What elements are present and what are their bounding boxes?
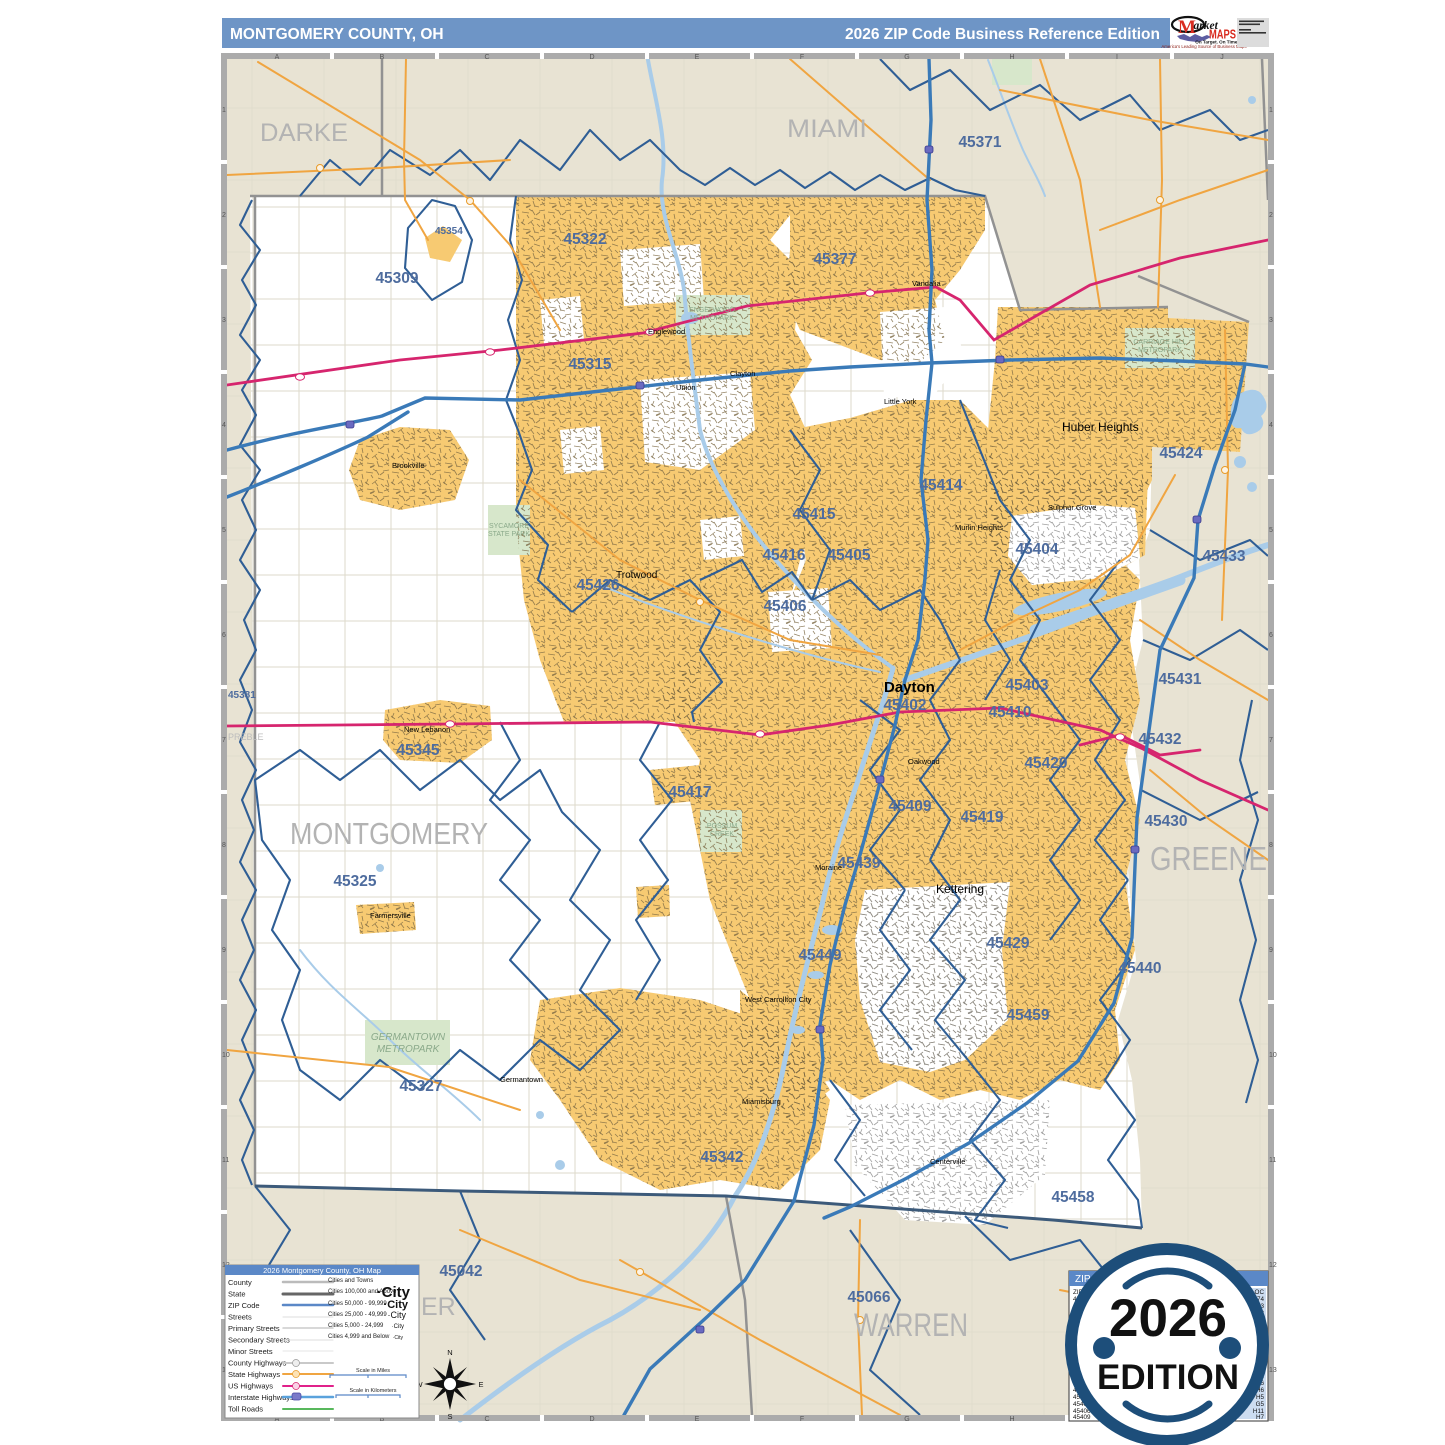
svg-text:State Highways: State Highways [228, 1370, 280, 1379]
svg-text:Minor Streets: Minor Streets [228, 1347, 273, 1356]
svg-text:GREENE: GREENE [1150, 840, 1267, 877]
svg-text:4: 4 [222, 422, 226, 429]
svg-text:I: I [1116, 54, 1118, 61]
svg-text:MIAMI: MIAMI [787, 115, 867, 143]
svg-text:45042: 45042 [439, 1263, 482, 1280]
svg-text:8: 8 [1269, 842, 1273, 849]
svg-text:West Carrollton City: West Carrollton City [745, 995, 812, 1004]
svg-text:45402: 45402 [883, 697, 926, 714]
svg-text:45406: 45406 [763, 598, 806, 615]
svg-text:45420: 45420 [1024, 755, 1067, 772]
svg-text:D: D [589, 54, 594, 61]
svg-text:County: County [228, 1278, 252, 1287]
svg-text:45410: 45410 [988, 704, 1031, 721]
svg-text:Cities 5,000 - 24,999: Cities 5,000 - 24,999 [328, 1323, 384, 1329]
svg-text:45440: 45440 [1118, 960, 1161, 977]
svg-text:7: 7 [1269, 737, 1273, 744]
svg-text:·City: ·City [393, 1335, 404, 1341]
svg-text:Huber Heights: Huber Heights [1062, 420, 1139, 434]
svg-text:45309: 45309 [375, 270, 418, 287]
svg-text:Englewood: Englewood [648, 327, 685, 336]
svg-text:S: S [447, 1412, 452, 1421]
svg-text:45431: 45431 [1158, 671, 1201, 688]
svg-text:County Highways: County Highways [228, 1359, 287, 1368]
svg-text:E: E [478, 1380, 483, 1389]
svg-text:A: A [275, 54, 280, 61]
svg-text:G: G [904, 54, 909, 61]
svg-text:45417: 45417 [668, 784, 711, 801]
svg-text:Cities 25,000 - 49,999: Cities 25,000 - 49,999 [328, 1312, 387, 1318]
svg-text:Cities 4,999 and Below: Cities 4,999 and Below [328, 1334, 390, 1340]
svg-text:45459: 45459 [1006, 1007, 1049, 1024]
svg-text:Dayton: Dayton [884, 679, 935, 696]
svg-text:MONTGOMERY COUNTY, OH: MONTGOMERY COUNTY, OH [230, 26, 444, 43]
svg-text:45424: 45424 [1159, 445, 1202, 462]
svg-text:10: 10 [222, 1052, 230, 1059]
svg-text:2026 ZIP Code Business Referen: 2026 ZIP Code Business Reference Edition [845, 26, 1160, 43]
svg-text:Vandalia: Vandalia [912, 279, 941, 288]
svg-text:F: F [800, 1416, 804, 1423]
svg-text:Cities and Towns: Cities and Towns [328, 1278, 373, 1284]
svg-text:45449: 45449 [798, 947, 841, 964]
svg-text:Kettering: Kettering [936, 882, 984, 896]
svg-text:45371: 45371 [958, 134, 1001, 151]
svg-text:WARREN: WARREN [854, 1307, 968, 1343]
svg-text:GERMANTOWN: GERMANTOWN [371, 1032, 446, 1043]
svg-text:Clayton: Clayton [730, 369, 755, 378]
svg-text:D: D [589, 1416, 594, 1423]
svg-text:45381: 45381 [228, 690, 256, 701]
svg-text:Little York: Little York [884, 397, 917, 406]
svg-text:11: 11 [1269, 1157, 1276, 1164]
svg-text:2: 2 [1269, 212, 1273, 219]
svg-text:45415: 45415 [792, 506, 835, 523]
svg-text:45377: 45377 [813, 251, 856, 268]
svg-text:H5: H5 [1256, 1394, 1265, 1401]
svg-text:N: N [447, 1348, 452, 1357]
svg-text:13: 13 [1269, 1367, 1277, 1374]
svg-text:Trotwood: Trotwood [616, 570, 657, 581]
svg-text:E: E [695, 54, 700, 61]
svg-text:F: F [800, 54, 804, 61]
svg-text:Centerville: Centerville [930, 1157, 965, 1166]
svg-text:CREEK: CREEK [710, 831, 734, 838]
svg-text:45409: 45409 [1073, 1414, 1091, 1421]
svg-text:J: J [1220, 54, 1224, 61]
svg-text:ZIP Code: ZIP Code [228, 1301, 260, 1310]
svg-text:7: 7 [222, 737, 226, 744]
svg-text:Union: Union [676, 383, 696, 392]
svg-text:2: 2 [222, 212, 226, 219]
svg-text:New Lebanon: New Lebanon [404, 725, 450, 734]
svg-text:PREBLE: PREBLE [228, 732, 264, 742]
svg-text:4: 4 [1269, 422, 1273, 429]
svg-text:·City: ·City [388, 1310, 407, 1320]
svg-text:Miamisburg: Miamisburg [742, 1097, 781, 1106]
svg-text:45419: 45419 [960, 809, 1003, 826]
svg-text:Toll Roads: Toll Roads [228, 1405, 263, 1414]
svg-text:H7: H7 [1256, 1414, 1265, 1421]
svg-text:6: 6 [222, 632, 226, 639]
svg-text:5: 5 [1269, 527, 1273, 534]
svg-text:Scale in Kilometers: Scale in Kilometers [349, 1388, 396, 1394]
svg-text:45403: 45403 [1005, 677, 1048, 694]
svg-text:Farmersville: Farmersville [370, 911, 411, 920]
svg-text:45315: 45315 [568, 356, 611, 373]
svg-text:8: 8 [222, 842, 226, 849]
svg-text:11: 11 [222, 1157, 229, 1164]
svg-text:SYCAMORE: SYCAMORE [489, 523, 529, 530]
svg-text:B: B [380, 54, 385, 61]
svg-text:METROPARK: METROPARK [377, 1044, 441, 1055]
svg-text:1: 1 [1269, 107, 1273, 114]
svg-text:CARRIAGE HILL: CARRIAGE HILL [1133, 339, 1186, 346]
svg-text:Sulphur Grove: Sulphur Grove [1048, 503, 1096, 512]
svg-text:G5: G5 [1256, 1401, 1265, 1408]
svg-text:45439: 45439 [837, 855, 880, 872]
svg-text:H: H [1009, 54, 1014, 61]
svg-text:ER: ER [421, 1293, 456, 1321]
svg-text:America's Leading Source of Bu: America's Leading Source of Business Map… [1161, 44, 1246, 49]
svg-text:Oakwood: Oakwood [908, 757, 940, 766]
svg-text:5: 5 [222, 527, 226, 534]
svg-text:3: 3 [1269, 317, 1273, 324]
svg-text:9: 9 [1269, 947, 1273, 954]
svg-text:Cities 50,000 - 99,999: Cities 50,000 - 99,999 [328, 1301, 387, 1307]
svg-text:45430: 45430 [1144, 813, 1187, 830]
svg-text:METROPARK: METROPARK [690, 315, 734, 322]
svg-text:45066: 45066 [847, 1289, 890, 1306]
svg-text:·City: ·City [392, 1324, 404, 1330]
svg-text:C: C [484, 54, 489, 61]
svg-text:Streets: Streets [228, 1313, 252, 1322]
svg-text:US Highways: US Highways [228, 1382, 273, 1391]
svg-text:2026: 2026 [1109, 1289, 1227, 1348]
svg-text:45433: 45433 [1202, 548, 1245, 565]
svg-text:45325: 45325 [333, 873, 376, 890]
svg-text:45429: 45429 [986, 935, 1029, 952]
svg-text:C: C [484, 1416, 489, 1423]
svg-text:E: E [695, 1416, 700, 1423]
svg-text:45404: 45404 [1015, 541, 1058, 558]
svg-text:45426: 45426 [576, 577, 619, 594]
svg-text:State: State [228, 1290, 246, 1299]
svg-text:6: 6 [1269, 632, 1273, 639]
svg-text:45322: 45322 [563, 231, 606, 248]
svg-text:MONTGOMERY: MONTGOMERY [290, 816, 488, 851]
svg-text:EDITION: EDITION [1097, 1358, 1239, 1397]
svg-text:Brookville: Brookville [392, 461, 425, 470]
svg-text:45414: 45414 [919, 477, 962, 494]
svg-text:45354: 45354 [435, 226, 463, 237]
svg-text:45416: 45416 [762, 547, 805, 564]
svg-text:ENGELWOOD: ENGELWOOD [689, 307, 735, 314]
svg-text:45409: 45409 [888, 798, 931, 815]
svg-text:45327: 45327 [399, 1078, 442, 1095]
svg-text:Germantown: Germantown [500, 1075, 543, 1084]
svg-text:DARKE: DARKE [260, 119, 348, 147]
svg-text:G: G [904, 1416, 909, 1423]
svg-text:STATE PARK: STATE PARK [488, 531, 530, 538]
svg-text:METROPARK: METROPARK [1138, 347, 1182, 354]
svg-text:H: H [1009, 1416, 1014, 1423]
svg-text:10: 10 [1269, 1052, 1277, 1059]
svg-text:12: 12 [1269, 1262, 1277, 1269]
svg-text:Secondary Streets: Secondary Streets [228, 1336, 290, 1345]
svg-text:Murlin Heights: Murlin Heights [955, 523, 1003, 532]
svg-text:Scale in Miles: Scale in Miles [356, 1368, 390, 1374]
svg-text:3: 3 [222, 317, 226, 324]
svg-text:45345: 45345 [396, 742, 439, 759]
svg-text:POSSUM: POSSUM [707, 823, 738, 830]
svg-text:45405: 45405 [827, 547, 870, 564]
svg-text:Primary Streets: Primary Streets [228, 1324, 280, 1333]
svg-text:9: 9 [222, 947, 226, 954]
svg-text:1: 1 [222, 107, 226, 114]
svg-text:45458: 45458 [1051, 1189, 1094, 1206]
svg-text:2026 Montgomery County, OH Map: 2026 Montgomery County, OH Map [263, 1266, 381, 1275]
svg-text:45432: 45432 [1138, 731, 1181, 748]
svg-text:45342: 45342 [700, 1149, 743, 1166]
